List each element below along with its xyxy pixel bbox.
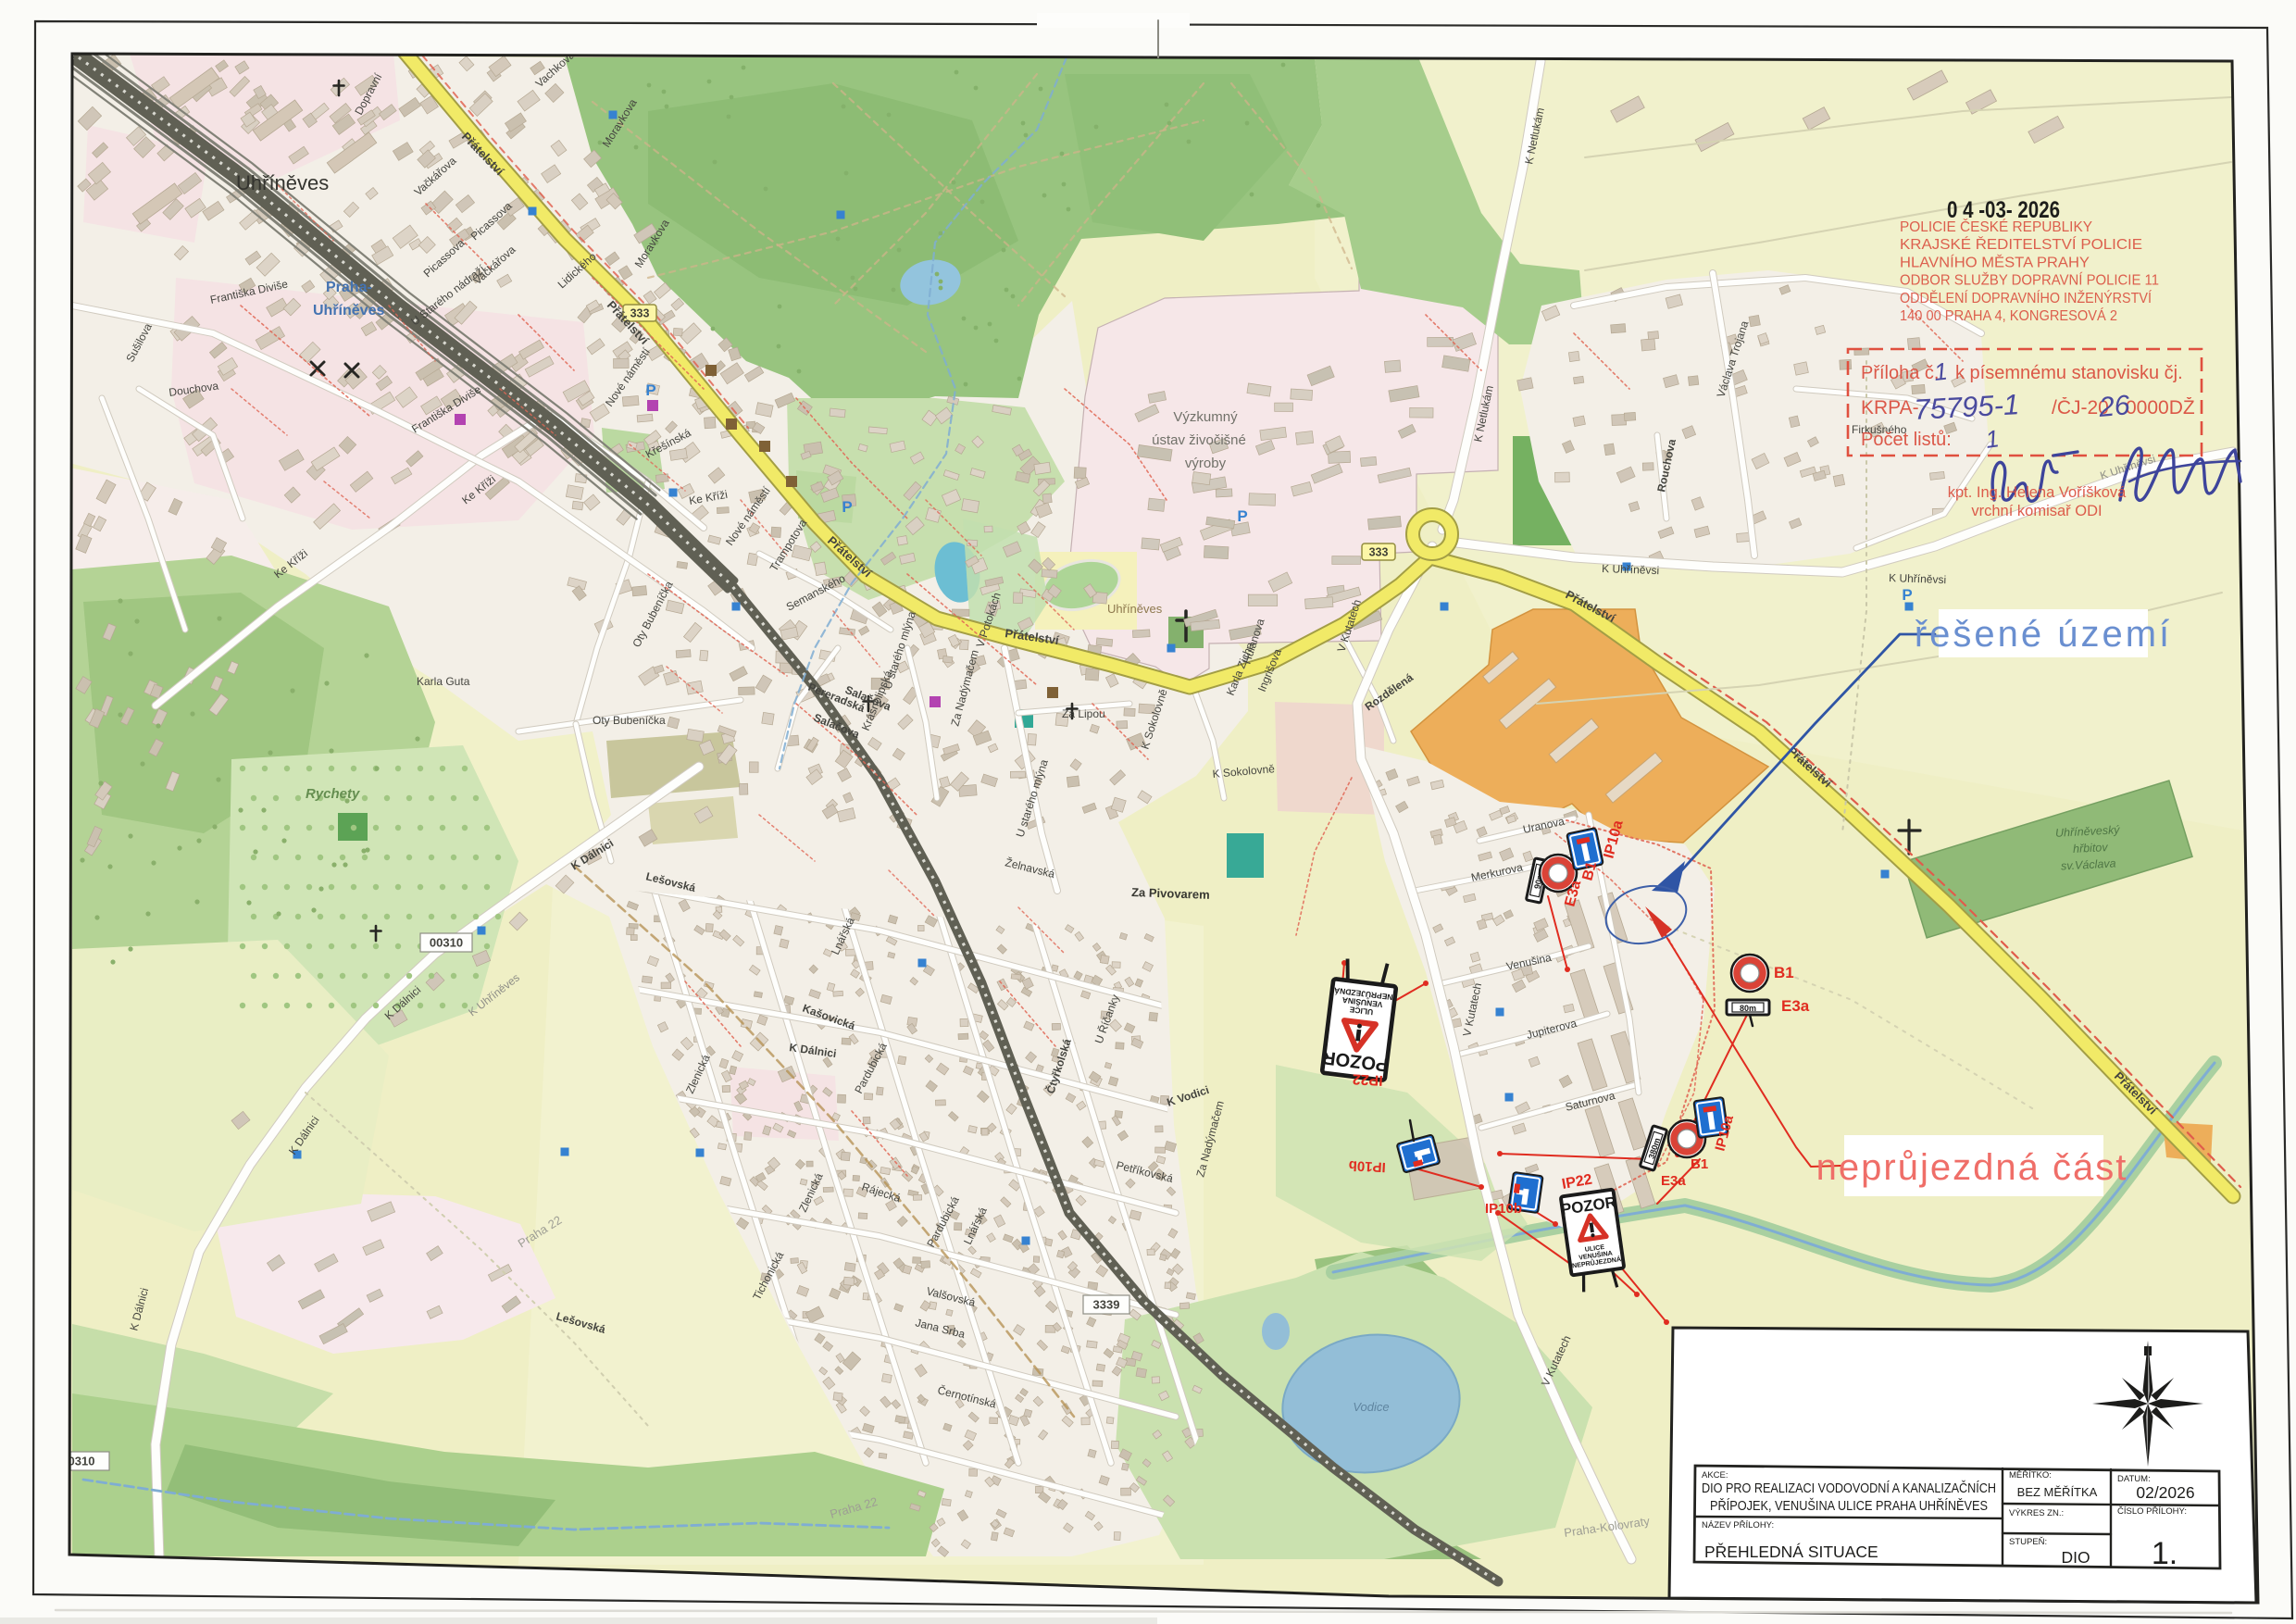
svg-text:B1: B1 (1774, 964, 1794, 981)
svg-text:k písemnému stanovisku čj.: k písemnému stanovisku čj. (1955, 363, 2183, 383)
svg-text:POLICIE ČESKÉ REPUBLIKY: POLICIE ČESKÉ REPUBLIKY (1900, 218, 2092, 235)
svg-text:DIO: DIO (2061, 1548, 2090, 1567)
svg-text:B1: B1 (1691, 1156, 1708, 1172)
svg-text:řešené území: řešené území (1915, 614, 2172, 655)
svg-text:MĚŘÍTKO:: MĚŘÍTKO: (2009, 1470, 2052, 1480)
svg-text:E3a: E3a (1781, 997, 1810, 1015)
svg-text:ODBOR SLUŽBY DOPRAVNÍ POLICIE: ODBOR SLUŽBY DOPRAVNÍ POLICIE 11 (1900, 271, 2159, 289)
svg-text:kpt. Ing. Helena Voříšková: kpt. Ing. Helena Voříšková (1948, 484, 2127, 501)
svg-text:E3a: E3a (1661, 1173, 1686, 1189)
svg-text:DIO PRO REALIZACI VODOVODNÍ A: DIO PRO REALIZACI VODOVODNÍ A KANALIZAČN… (1702, 1480, 1996, 1496)
svg-text:KRPA-: KRPA- (1861, 397, 1919, 418)
svg-text:02/2026: 02/2026 (2136, 1483, 2194, 1502)
svg-text:Příloha č.: Příloha č. (1861, 363, 1939, 383)
svg-text:80m: 80m (1740, 1004, 1756, 1013)
svg-text:Počet listů:: Počet listů: (1861, 430, 1952, 450)
svg-text:ČÍSLO PŘÍLOHY:: ČÍSLO PŘÍLOHY: (2117, 1506, 2187, 1517)
svg-text:BEZ MĚŘÍTKA: BEZ MĚŘÍTKA (2017, 1485, 2098, 1499)
svg-text:vrchní komisař ODI: vrchní komisař ODI (1971, 503, 2102, 519)
svg-text:140 00 PRAHA 4, KONGRESOVÁ 2: 140 00 PRAHA 4, KONGRESOVÁ 2 (1900, 306, 2117, 324)
svg-text:HLAVNÍHO MĚSTA PRAHY: HLAVNÍHO MĚSTA PRAHY (1900, 253, 2090, 270)
svg-text:KRAJSKÉ ŘEDITELSTVÍ POLICIE: KRAJSKÉ ŘEDITELSTVÍ POLICIE (1900, 235, 2142, 253)
svg-text:PŘEHLEDNÁ SITUACE: PŘEHLEDNÁ SITUACE (1704, 1543, 1878, 1561)
svg-text:neprůjezdná část: neprůjezdná část (1816, 1147, 2128, 1188)
svg-text:NÁZEV PŘÍLOHY:: NÁZEV PŘÍLOHY: (1702, 1520, 1774, 1530)
svg-text:75795-1: 75795-1 (1914, 388, 2020, 426)
svg-text:VÝKRES ZN.:: VÝKRES ZN.: (2009, 1508, 2064, 1518)
svg-text:STUPEŇ:: STUPEŇ: (2009, 1537, 2047, 1547)
svg-text:PŘÍPOJEK, VENUŠINA ULICE PRAHA: PŘÍPOJEK, VENUŠINA ULICE PRAHA UHŘÍNĚVES (1710, 1498, 1988, 1514)
svg-text:IP10b: IP10b (1485, 1201, 1522, 1217)
svg-text:IP22: IP22 (1352, 1070, 1383, 1088)
svg-text:0000DŽ: 0000DŽ (2126, 397, 2195, 418)
svg-text:AKCE:: AKCE: (1702, 1470, 1728, 1480)
svg-text:ODDĚLENÍ DOPRAVNÍHO INŽENÝRSTV: ODDĚLENÍ DOPRAVNÍHO INŽENÝRSTVÍ (1900, 289, 2152, 306)
svg-text:IP10b: IP10b (1348, 1157, 1386, 1175)
svg-text:26: 26 (2097, 390, 2131, 423)
svg-text:1.: 1. (2152, 1536, 2177, 1571)
